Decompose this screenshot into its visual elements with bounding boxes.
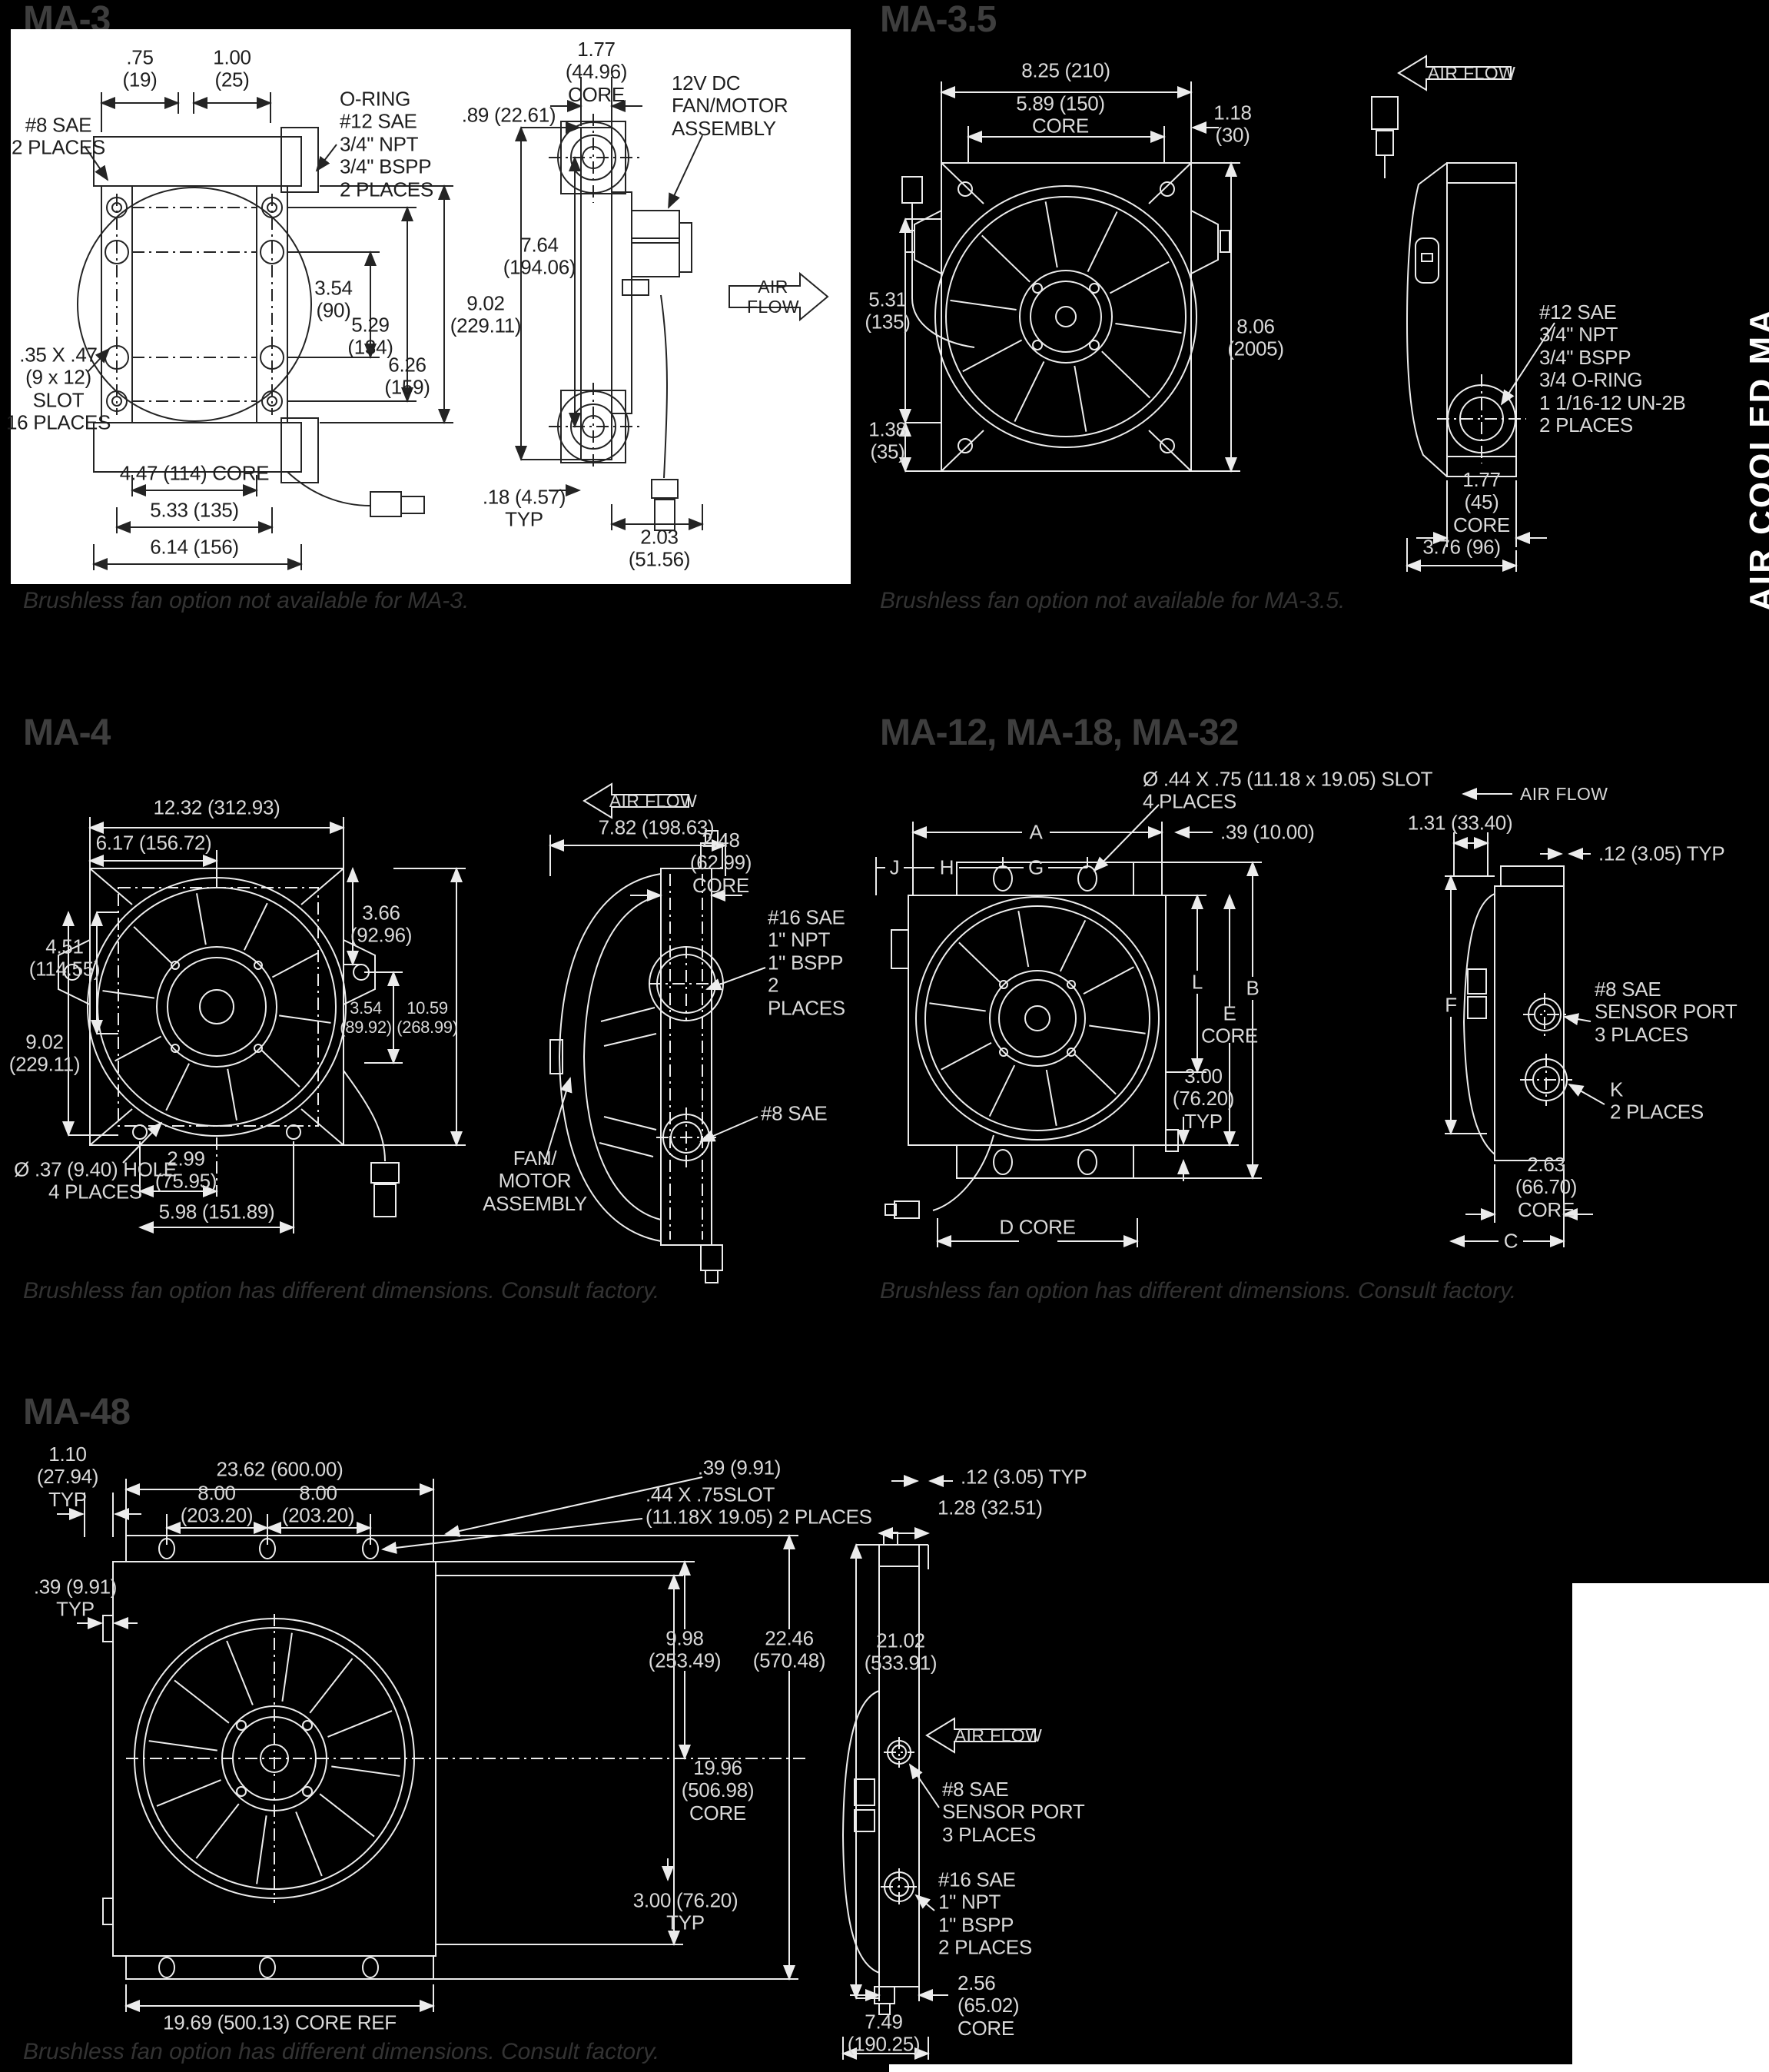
ma4-dim-598: 5.98 (151.89) [159, 1200, 275, 1223]
ma48-dim-300: 3.00 (76.20) TYP [633, 1890, 738, 1935]
ma12-dim-H: H [940, 856, 954, 878]
ma12-dim-300: 3.00 (76.20) TYP [1173, 1065, 1234, 1133]
ma12-dim-core: 2.63 (66.70) CORE [1515, 1154, 1577, 1221]
ma48-dim-128: 1.28 (32.51) [938, 1496, 1043, 1519]
ma4-dim-617: 6.17 (156.72) [96, 832, 212, 854]
ma48-dim-749: 7.49 (190.25) [848, 2011, 920, 2057]
ma12-dim-Ecore: E CORE [1201, 1003, 1258, 1048]
ma12-dim-B: B [1246, 977, 1259, 999]
ma35-dim-531: 5.31 (135) [865, 289, 910, 334]
ma12-dim-A: A [1029, 821, 1042, 843]
ma3-port-oring-label: O-RING #12 SAE 3/4" NPT 3/4" BSPP 2 PLAC… [340, 88, 433, 201]
page-edge-tab: AIR COOLED MA [1743, 307, 1769, 845]
ma3-dim-354: 3.54 (90) [314, 277, 352, 323]
ma12-dim-C: C [1504, 1230, 1518, 1252]
ma3-slot-note: .35 X .47 (9 x 12) SLOT 16 PLACES [6, 344, 111, 434]
ma48-dim-core256: 2.56 (65.02) CORE [958, 1972, 1019, 2040]
ma12-sensor-note: #8 SAE SENSOR PORT 3 PLACES [1595, 978, 1737, 1046]
ma48-dim-110: 1.10 (27.94) TYP [37, 1443, 98, 1511]
ma35-dim-138: 1.38 (35) [868, 419, 906, 464]
ma12-dim-131: 1.31 (33.40) [1408, 812, 1513, 834]
ma35-section: 8.25 (210) 5.89 (150) CORE 1.18 (30) 5.3… [868, 0, 1769, 638]
ma3-dim-flange-right: 1.00 (25) [213, 47, 251, 92]
ma4-ports16-note: #16 SAE 1" NPT 1" BSPP 2 PLACES [768, 907, 856, 1020]
ma35-dim-376: 3.76 (96) [1422, 536, 1500, 558]
ma48-airflow-label: AIR FLOW [954, 1725, 1042, 1745]
ma4-dim-451: 4.51 (114.55) [29, 936, 101, 981]
ma12-slot-note: Ø .44 X .75 (11.18 x 19.05) SLOT 4 PLACE… [1143, 769, 1432, 814]
ma35-front-view [902, 81, 1240, 471]
ma12-dim-K: K 2 PLACES [1610, 1079, 1704, 1124]
ma35-footnote: Brushless fan option not available for M… [880, 587, 1345, 615]
ma48-dim-039typ: .39 (9.91) TYP [34, 1576, 117, 1622]
ma35-ports-note: #12 SAE 3/4" NPT 3/4" BSPP 3/4 O-RING 1 … [1539, 301, 1686, 437]
blank-bottom-strip [889, 2064, 1769, 2072]
ma48-footnote: Brushless fan option has different dimen… [23, 2038, 659, 2066]
ma48-dim-coreref: 19.69 (500.13) CORE REF [163, 2011, 397, 2034]
ma12-dim-F: F [1445, 994, 1457, 1016]
ma3-footnote: Brushless fan option not available for M… [23, 587, 469, 615]
ma3-front-centerlines [117, 194, 272, 415]
ma35-dim-118: 1.18 (30) [1213, 102, 1251, 148]
ma3-dim-018: .18 (4.57) TYP [483, 486, 566, 532]
ma4-dim-core: 2.48 (62.99) CORE [690, 829, 752, 897]
ma4-section: 12.32 (312.93) 6.17 (156.72) 3.66 (92.96… [11, 711, 856, 1326]
ma48-sensor-note: #8 SAE SENSOR PORT 3 PLACES [942, 1778, 1084, 1846]
ma4-dim-1232: 12.32 (312.93) [154, 796, 280, 819]
ma12-dim-J: J [890, 856, 900, 878]
ma3-drawing-panel: .75 (19) 1.00 (25) #8 SAE 2 PLACES O-RIN… [11, 29, 851, 584]
ma12-dim-L: L [1192, 971, 1203, 993]
ma4-dim-1059: 10.59 (268.99) [397, 999, 458, 1038]
blank-corner-block [1572, 1583, 1769, 2072]
ma4-sae8-note: #8 SAE [761, 1102, 827, 1124]
ma3-dim-626: 6.26 (159) [384, 354, 430, 400]
ma3-dim-529: 5.29 (134) [347, 314, 393, 360]
ma12-dim-039: .39 (10.00) [1220, 821, 1314, 843]
ma35-dim-825: 8.25 (210) [1021, 59, 1110, 81]
ma48-dim-039: .39 (9.91) [698, 1456, 781, 1479]
ma12-airflow-label: AIR FLOW [1520, 784, 1608, 804]
ma3-dim-core-width: 4.47 (114) CORE [120, 462, 269, 484]
ma3-motor-note: 12V DC FAN/MOTOR ASSEMBLY [672, 72, 851, 140]
ma4-footnote: Brushless fan option has different dimen… [23, 1277, 659, 1305]
ma3-airflow-label: AIR FLOW [735, 277, 812, 317]
ma3-dim-089: .89 (22.61) [462, 104, 556, 126]
ma35-dim-806: 8.06 (2005) [1227, 316, 1283, 361]
ma48-ports16-note: #16 SAE 1" NPT 1" BSPP 2 PLACES [938, 1868, 1032, 1959]
ma12-dim-Dcore: D CORE [999, 1216, 1075, 1238]
ma4-side-centerlines [649, 874, 724, 1240]
ma4-hole-note: Ø .37 (9.40) HOLE 4 PLACES [14, 1159, 177, 1204]
ma4-dim-354: 3.54 (89.92) [340, 999, 392, 1038]
ma48-slot-note: .44 X .75SLOT (11.18X 19.05) 2 PLACES [646, 1484, 872, 1529]
ma3-dim-764: 7.64 (194.06) [503, 234, 576, 280]
ma3-dim-533: 5.33 (135) [150, 499, 239, 521]
ma48-dim-012: .12 (3.05) TYP [961, 1466, 1087, 1488]
ma35-airflow-label: AIR FLOW [1428, 63, 1515, 83]
ma48-dim-2102: 21.02 (533.91) [865, 1630, 937, 1675]
ma3-dim-flange-left: .75 (19) [122, 47, 157, 92]
ma35-dim-core: 5.89 (150) CORE [1016, 93, 1105, 138]
ma12-footnote: Brushless fan option has different dimen… [880, 1277, 1516, 1305]
ma3-dim-203: 2.03 (51.56) [629, 526, 690, 572]
catalog-page: MA-3 MA-3.5 MA-4 MA-12, MA-18, MA-32 MA-… [0, 0, 1769, 2072]
ma48-dim-800-right: 8.00 (203.20) [282, 1483, 354, 1528]
ma48-dim-core1996: 19.96 (506.98) CORE [682, 1757, 754, 1825]
ma12-dim-G: G [1028, 856, 1044, 878]
ma35-dim-core-depth: 1.77 (45) CORE [1453, 469, 1510, 536]
ma12-dim-012: .12 (3.05) TYP [1598, 842, 1724, 865]
ma48-dim-800-left: 8.00 (203.20) [181, 1483, 253, 1528]
ma4-front-core-outline [118, 888, 318, 1197]
ma3-dim-614: 6.14 (156) [150, 536, 239, 558]
ma3-dim-902: 9.02 (229.11) [450, 293, 522, 338]
ma48-section: 1.10 (27.94) TYP 23.62 (600.00) 8.00 (20… [11, 1391, 1758, 2072]
ma3-dim-core-depth: 1.77 (44.96) CORE [566, 38, 627, 106]
ma4-dim-299: 2.99 (75.95) [155, 1148, 217, 1194]
ma4-dim-366: 3.66 (92.96) [350, 902, 412, 948]
sidebar-vertical-label: AIR COOLED MA [1743, 307, 1769, 612]
ma4-dim-902: 9.02 (229.11) [9, 1031, 81, 1077]
ma3-port-8sae-label: #8 SAE 2 PLACES [12, 115, 105, 160]
ma4-fanmotor-note: FAN/ MOTOR ASSEMBLY [483, 1147, 587, 1215]
ma48-dim-2246: 22.46 (570.48) [753, 1628, 825, 1673]
ma12-section: Ø .44 X .75 (11.18 x 19.05) SLOT 4 PLACE… [868, 711, 1769, 1326]
ma48-dim-2362: 23.62 (600.00) [217, 1458, 344, 1480]
ma48-drawing [11, 1391, 1758, 2072]
ma4-airflow-label: AIR FLOW [609, 791, 697, 811]
ma48-dim-998: 9.98 (253.49) [649, 1628, 721, 1673]
